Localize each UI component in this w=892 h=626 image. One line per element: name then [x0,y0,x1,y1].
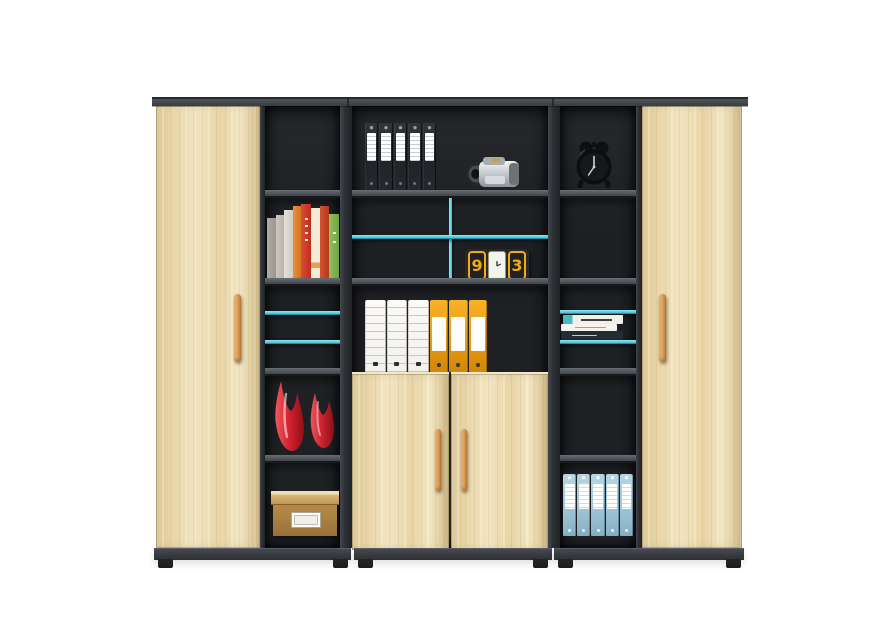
frame-pillar [260,105,265,548]
top-cap-seam [552,97,554,106]
shelf [560,190,636,198]
right-tall-door [642,105,742,548]
magazine [563,315,623,324]
alarm-clock [572,140,616,190]
black-binder [394,123,407,190]
book [329,214,339,278]
blue-binder [606,474,619,536]
cabinet-top-cap [152,97,748,106]
desk-clock-right-digit: 3 [508,251,526,280]
blue-binder [620,474,633,536]
blue-binder [591,474,604,536]
book [267,218,276,278]
photo-stage: 9 3 [0,0,892,626]
cabinet-foot [358,559,373,568]
glass-shelf [560,340,636,344]
shelf [560,278,636,286]
cabinet-foot [533,559,548,568]
glass-shelf [265,311,340,315]
shelf [560,455,636,463]
shelf [265,190,340,198]
orange-binder [449,300,468,372]
book [293,206,301,278]
storage-box [273,491,337,536]
magazine-stack [561,314,625,340]
cabinet-foot [726,559,741,568]
blue-binder-row [563,474,633,536]
cabinet-foot [333,559,348,568]
right-tall-door-handle [659,294,666,362]
storage-box-lid [271,491,339,505]
black-binder [423,123,436,190]
cabinet-foot [158,559,173,568]
camcorder [463,151,527,191]
black-binder [408,123,421,190]
shelf [265,455,340,463]
base-center [354,548,552,560]
book [284,210,293,278]
black-binder-row [365,123,436,190]
base-right [554,548,744,560]
cabinet-foot [558,559,573,568]
shelf [352,278,548,286]
red-vases [268,380,340,455]
book [311,208,320,278]
shelf [352,190,548,198]
left-tall-door-handle [234,294,241,362]
book [276,215,284,278]
book [320,206,329,278]
orange-binder [469,300,488,372]
left-shelf-column [265,105,340,548]
shelf [265,368,340,376]
glass-shelf [352,235,548,239]
top-cap-seam [347,97,349,106]
book [301,204,311,278]
center-door-left-handle [435,429,441,491]
storage-box-label [291,512,321,528]
magazine [561,324,617,331]
book-row [267,203,339,278]
frame-pillar [340,105,352,548]
file-binder-row [365,300,487,372]
clock-hands-icon [490,259,504,273]
desk-clock-face [488,251,506,280]
white-binder [408,300,429,372]
base-left [154,548,351,560]
glass-shelf [265,340,340,344]
black-binder [365,123,378,190]
cabinet: 9 3 [155,97,745,570]
blue-binder [563,474,576,536]
center-door-right-handle [461,429,467,491]
left-tall-door [156,105,260,548]
white-binder [365,300,386,372]
frame-pillar [548,105,560,548]
white-binder [387,300,408,372]
magazine [561,331,623,340]
desk-clock-left-digit: 9 [468,251,486,280]
shelf [560,368,636,376]
blue-binder [577,474,590,536]
orange-binder [430,300,449,372]
shelf [265,278,340,286]
black-binder [379,123,392,190]
